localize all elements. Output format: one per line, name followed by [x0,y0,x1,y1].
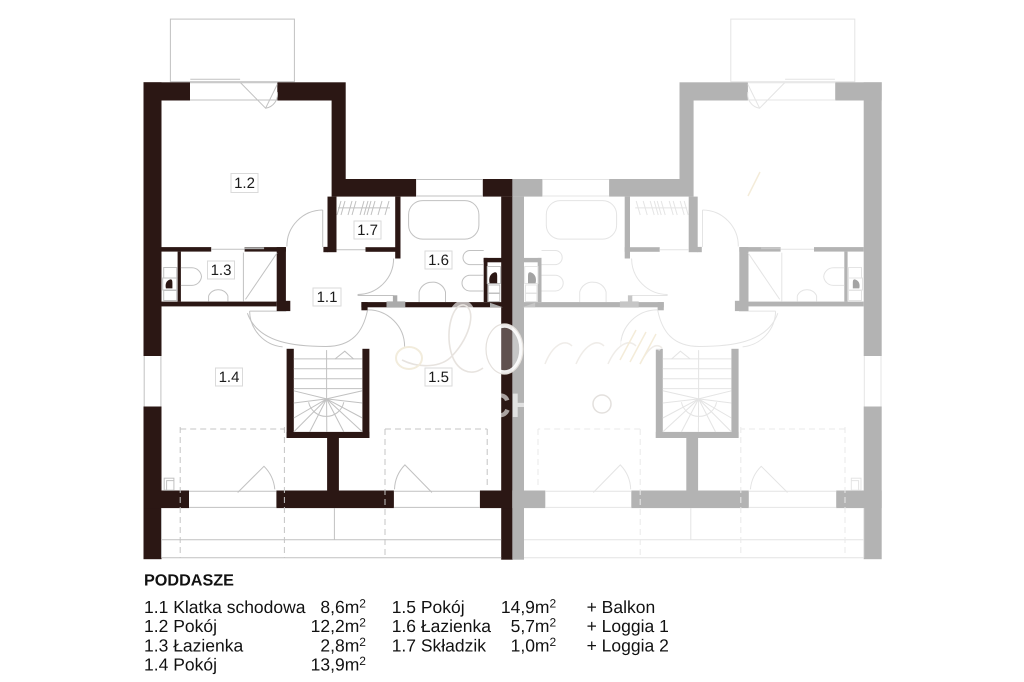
svg-text:1,0m: 1,0m [511,635,550,655]
svg-text:12,2m: 12,2m [311,616,360,636]
svg-text:1.4: 1.4 [219,369,240,386]
svg-text:+ Balkon: + Balkon [587,597,656,617]
svg-text:1.1 Klatka schodowa: 1.1 Klatka schodowa [144,597,306,617]
svg-text:1.2: 1.2 [234,175,255,192]
svg-text:8,6m: 8,6m [320,597,359,617]
svg-text:1.6: 1.6 [428,252,449,269]
svg-text:13,9m: 13,9m [311,655,360,675]
svg-text:1.2 Pokój: 1.2 Pokój [144,616,217,636]
svg-text:+ Loggia 2: + Loggia 2 [587,635,669,655]
svg-text:2: 2 [359,654,366,668]
svg-text:2: 2 [359,597,366,611]
svg-text:1.3: 1.3 [211,262,232,279]
svg-text:2: 2 [550,597,557,611]
svg-text:+ Loggia 1: + Loggia 1 [587,616,669,636]
svg-text:5,7m: 5,7m [511,616,550,636]
svg-text:1.3 Łazienka: 1.3 Łazienka [144,635,244,655]
svg-text:1.1: 1.1 [317,289,338,306]
svg-text:14,9m: 14,9m [501,597,550,617]
svg-text:1.6 Łazienka: 1.6 Łazienka [392,616,492,636]
svg-text:1.5: 1.5 [428,369,449,386]
svg-text:2,8m: 2,8m [320,635,359,655]
svg-text:1.7 Składzik: 1.7 Składzik [392,635,487,655]
svg-text:1.5 Pokój: 1.5 Pokój [392,597,465,617]
svg-text:CH: CH [486,387,535,425]
svg-text:1.7: 1.7 [357,222,378,239]
svg-text:2: 2 [550,635,557,649]
svg-text:2: 2 [359,616,366,630]
svg-text:2: 2 [550,616,557,630]
svg-text:PODDASZE: PODDASZE [144,572,234,590]
svg-text:2: 2 [359,635,366,649]
svg-text:1.4 Pokój: 1.4 Pokój [144,655,217,675]
